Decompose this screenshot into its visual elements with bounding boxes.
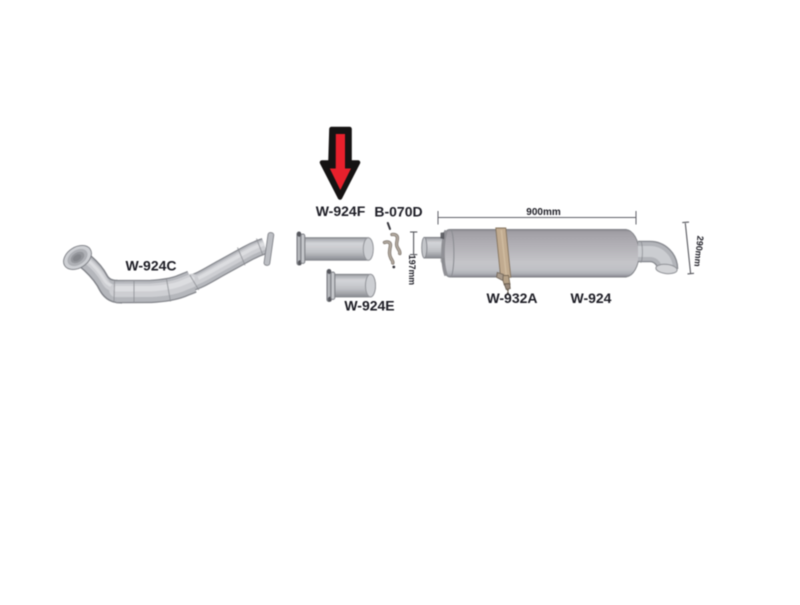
svg-text:W-932A: W-932A	[486, 290, 537, 306]
svg-text:W-924E: W-924E	[344, 298, 394, 314]
svg-text:900mm: 900mm	[526, 207, 561, 218]
svg-text:B-070D: B-070D	[374, 204, 422, 220]
svg-text:197mm: 197mm	[407, 255, 417, 285]
svg-text:W-924F: W-924F	[316, 203, 366, 219]
svg-text:W-924: W-924	[571, 290, 612, 306]
svg-text:W-924C: W-924C	[125, 258, 176, 274]
